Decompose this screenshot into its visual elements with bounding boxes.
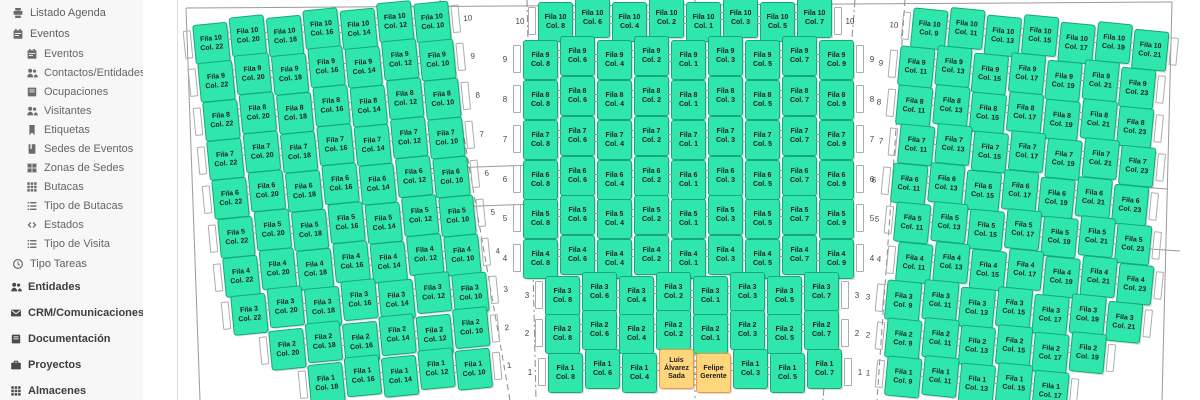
seat-row-label: Fila 9 <box>643 47 661 56</box>
seat[interactable]: Fila 9Col. 2 <box>634 36 669 76</box>
seat-col-label: Col. 6 <box>593 369 612 378</box>
seat[interactable]: Fila 8Col. 20 <box>239 91 278 134</box>
seat[interactable]: Fila 7Col. 20 <box>243 130 282 173</box>
seat[interactable]: Fila 1Col. 16 <box>344 354 383 397</box>
seat-row-label: Fila 5 <box>717 206 735 215</box>
sidebar-item-ocupaciones[interactable]: Ocupaciones <box>0 82 143 101</box>
seat-col-label: Col. 5 <box>753 259 772 268</box>
seat-col-label: Col. 14 <box>361 144 385 156</box>
sidebar-item-almacenes[interactable]: Almacenes <box>0 378 143 400</box>
seat[interactable]: Fila 3Col. 15 <box>995 286 1034 329</box>
row-number-label: 7 <box>475 129 488 139</box>
seat[interactable]: Fila 8Col. 17 <box>1006 91 1045 134</box>
seat[interactable]: Fila 5Col. 5 <box>745 199 780 239</box>
seat[interactable]: Fila 7Col. 4 <box>597 120 632 160</box>
seat[interactable]: Fila 5Col. 16 <box>327 201 366 244</box>
row-end-bracket <box>208 224 219 253</box>
seat-row-label: Fila 7 <box>791 127 809 136</box>
row-end-bracket <box>492 352 503 381</box>
seat[interactable]: Fila 3Col. 3 <box>730 272 765 312</box>
seat[interactable]: Fila 9Col. 17 <box>1008 52 1047 95</box>
row-end-bracket <box>488 276 499 305</box>
sidebar-item-etiquetas[interactable]: Etiquetas <box>0 120 143 139</box>
address-book-icon <box>10 333 22 345</box>
sidebar-item-documentación[interactable]: Documentación <box>0 326 143 352</box>
row-number-label: 1 <box>524 368 536 377</box>
seat[interactable]: Fila 9Col. 5 <box>745 40 780 80</box>
seat-col-label: Col. 20 <box>266 268 290 280</box>
seat[interactable]: Fila 1Col. 13 <box>958 362 997 400</box>
seat-row-label: Fila 9 <box>606 51 624 60</box>
users-icon <box>26 67 38 79</box>
seat-row-label: Fila 1 <box>816 360 834 369</box>
seat-col-label: Col. 11 <box>928 299 951 311</box>
seat[interactable]: Fila 8Col. 13 <box>932 84 971 127</box>
seat-row-label: Fila 2 <box>554 325 572 334</box>
seat-col-label: Col. 22 <box>210 119 234 131</box>
seat[interactable]: Fila 2Col. 19 <box>1068 331 1107 374</box>
seat-col-label: Col. 4 <box>627 334 646 343</box>
seat[interactable]: Fila 5Col. 3 <box>708 195 743 235</box>
sidebar-item-label: Almacenes <box>28 385 86 397</box>
seat[interactable]: Fila 4Col. 13 <box>932 241 971 284</box>
seat[interactable]: Fila 7Col. 7 <box>782 116 817 156</box>
seat-row-label: Fila 4 <box>717 246 735 255</box>
seat[interactable]: Fila 6Col. 3 <box>708 156 743 196</box>
seat-col-label: Col. 21 <box>1088 158 1112 170</box>
sidebar-item-sedes-de-eventos[interactable]: Sedes de Eventos <box>0 139 143 158</box>
seat[interactable]: Fila 1Col. 6 <box>585 349 620 389</box>
seat[interactable]: Fila 5Col. 13 <box>930 201 969 244</box>
seat-col-label: Col. 2 <box>664 292 683 301</box>
row-number-label: 10 <box>844 17 856 26</box>
seat[interactable]: Fila 4Col. 21 <box>1079 255 1118 298</box>
seat[interactable]: Fila 3Col. 6 <box>582 272 617 312</box>
seat[interactable]: Fila 9Col. 8 <box>523 40 558 80</box>
seat-col-label: Col. 11 <box>900 222 923 234</box>
seat-col-label: Col. 18 <box>312 341 336 353</box>
seat[interactable]: Fila 1Col. 5 <box>770 353 805 393</box>
seat-row-label: Fila 9 <box>569 47 587 56</box>
row-end-bracket <box>888 127 899 156</box>
seat[interactable]: Fila 1Col. 18 <box>307 362 346 400</box>
seat-col-label: Col. 15 <box>1028 35 1052 47</box>
seat-col-label: Col. 12 <box>384 21 408 33</box>
seat-row-label: Fila 8 <box>680 91 698 100</box>
seat[interactable]: Fila 8Col. 3 <box>708 76 743 116</box>
seat[interactable]: Fila 7Col. 1 <box>671 120 706 160</box>
sidebar-item-entidades[interactable]: Entidades <box>0 274 143 300</box>
seat-col-label: Col. 11 <box>902 262 925 274</box>
seat[interactable]: Fila 9Col. 13 <box>934 45 973 88</box>
seat[interactable]: Fila 9Col. 7 <box>782 36 817 76</box>
seat[interactable]: Fila 2Col. 14 <box>378 313 417 356</box>
seat-col-label: Col. 20 <box>241 73 265 85</box>
seat-row-label: Fila 7 <box>569 127 587 136</box>
seat-col-label: Col. 20 <box>236 35 260 47</box>
seat[interactable]: Fila 6Col. 20 <box>248 169 287 212</box>
seat[interactable]: Fila 2Col. 11 <box>921 317 960 360</box>
sidebar-item-label: Tipo de Visita <box>44 238 110 250</box>
seat-row-label: Fila 9 <box>532 51 550 60</box>
seat-row-label: Fila 1 <box>742 360 760 369</box>
sidebar-item-listado-agenda[interactable]: Listado Agenda <box>0 2 143 23</box>
seat-row-label: Fila 8 <box>717 87 735 96</box>
seat[interactable]: Fila 8Col. 1 <box>671 80 706 120</box>
seat[interactable]: Fila 1Col. 9 <box>884 355 923 398</box>
seat[interactable]: Fila 6Col. 6 <box>560 156 595 196</box>
seat[interactable]: Fila 10Col. 11 <box>947 7 986 50</box>
sidebar-item-proyectos[interactable]: Proyectos <box>0 352 143 378</box>
row-end-bracket <box>298 370 309 399</box>
seat-row-label: Fila 8 <box>791 87 809 96</box>
seat-col-label: Col. 2 <box>642 56 661 65</box>
seat-col-label: Col. 5 <box>775 334 794 343</box>
seat[interactable]: Fila 8Col. 16 <box>312 84 351 127</box>
seat[interactable]: Fila 8Col. 7 <box>782 76 817 116</box>
seat-col-label: Col. 18 <box>312 306 336 318</box>
seat[interactable]: Fila 9Col. 4 <box>597 40 632 80</box>
seat[interactable]: Fila 2Col. 15 <box>995 324 1034 367</box>
seat-row-label: Fila 5 <box>791 206 809 215</box>
seat[interactable]: Fila 6Col. 5 <box>745 160 780 200</box>
seat-col-label: Col. 6 <box>568 136 587 145</box>
row-end-bracket <box>841 319 849 347</box>
seat-row-label: Fila 7 <box>754 131 772 140</box>
seat[interactable]: Fila 2Col. 10 <box>452 306 491 349</box>
seat[interactable]: Fila 9Col. 9 <box>819 40 854 80</box>
seat-col-label: Col. 5 <box>775 296 794 305</box>
seat-map: Fila 10Col. 22Fila 10Col. 20Fila 10Col. … <box>178 0 1190 400</box>
seat[interactable]: Fila 1Col. 10 <box>454 348 493 391</box>
row-number-label: 10 <box>888 20 901 30</box>
row-end-bracket <box>513 45 521 73</box>
seat[interactable]: Fila 1Col. 3 <box>733 349 768 389</box>
seat[interactable]: Fila 3Col. 2 <box>656 272 691 312</box>
grid-icon <box>10 385 22 397</box>
seat[interactable]: Fila 5Col. 4 <box>597 199 632 239</box>
seat-row-label: Fila 3 <box>813 283 831 292</box>
seat[interactable]: Fila 9Col. 21 <box>1081 59 1120 102</box>
seat[interactable]: Fila 6Col. 12 <box>395 155 434 198</box>
seat[interactable]: Fila 8Col. 4 <box>597 80 632 120</box>
seat[interactable]: Fila 8Col. 21 <box>1079 98 1118 141</box>
row-end-bracket <box>490 314 501 343</box>
seat[interactable]: Fila 2Col. 8 <box>545 314 580 354</box>
seat-row-label: Fila 5 <box>532 210 550 219</box>
row-number-label: 10 <box>514 17 526 26</box>
seat-col-label: Col. 2 <box>657 18 676 27</box>
seat-row-label: Fila 8 <box>643 87 661 96</box>
row-end-bracket <box>202 185 213 214</box>
seat-col-label: Col. 15 <box>976 112 1000 124</box>
seat-row-label: Fila 8 <box>569 87 587 96</box>
row-end-bracket <box>513 125 521 153</box>
seat-col-label: Col. 5 <box>753 140 772 149</box>
seat[interactable]: Fila 10Col. 15 <box>1021 14 1060 57</box>
seat[interactable]: Fila 4Col. 16 <box>332 240 371 283</box>
seat[interactable]: Fila 8Col. 6 <box>560 76 595 116</box>
row-end-bracket <box>475 199 486 228</box>
row-number-label: 6 <box>499 175 511 184</box>
seat[interactable]: Fila 6Col. 17 <box>1001 169 1040 212</box>
seat[interactable]: Fila 10Col. 19 <box>1094 21 1133 64</box>
row-end-bracket <box>221 301 232 330</box>
seat[interactable]: Fila 6Col. 2 <box>634 156 669 196</box>
seat-row-label: Fila 2 <box>665 321 683 330</box>
seat-col-label: Col. 13 <box>941 65 965 77</box>
seat[interactable]: Fila 7Col. 8 <box>523 120 558 160</box>
row-number-label: 5 <box>871 214 884 224</box>
briefcase-icon <box>10 359 22 371</box>
seat[interactable]: Fila 5Col. 8 <box>523 199 558 239</box>
seat[interactable]: Fila 4Col. 2 <box>634 235 669 275</box>
seat-row-label: Fila 4 <box>606 250 624 259</box>
row-end-bracket <box>450 5 461 34</box>
seat[interactable]: Fila 1Col. 11 <box>921 355 960 398</box>
sidebar-item-tipo-tareas[interactable]: Tipo Tareas <box>0 253 143 274</box>
seat[interactable]: Fila 6Col. 16 <box>321 162 360 205</box>
row-end-bracket <box>460 82 471 111</box>
seat[interactable]: Fila 9Col. 20 <box>234 52 273 95</box>
seat-col-label: Col. 19 <box>1047 236 1071 248</box>
calendar-icon <box>12 28 24 40</box>
seat[interactable]: Fila 6Col. 21 <box>1074 176 1113 219</box>
seat[interactable]: Fila 5Col. 21 <box>1077 215 1116 258</box>
row-number-label: 2 <box>521 329 533 338</box>
seat[interactable]: Fila 2Col. 6 <box>582 310 617 350</box>
seat-col-label: Col. 19 <box>1049 276 1073 288</box>
sidebar-item-tipo-de-butacas[interactable]: Tipo de Butacas <box>0 196 143 215</box>
seat-col-label: Col. 12 <box>422 292 446 304</box>
seat-col-label: Col. 14 <box>385 299 409 311</box>
sidebar-item-eventos[interactable]: Eventos <box>0 23 143 44</box>
occupied-seat[interactable]: Felipe Gerente <box>696 353 731 393</box>
seat-col-label: Col. 1 <box>694 22 713 31</box>
row-end-bracket <box>464 121 475 150</box>
row-end-bracket <box>886 245 897 274</box>
seat[interactable]: Fila 10Col. 12 <box>376 0 415 43</box>
seat[interactable]: Fila 7Col. 12 <box>390 116 429 159</box>
seat[interactable]: Fila 1Col. 7 <box>807 349 842 389</box>
sidebar-item-tipo-de-visita[interactable]: Tipo de Visita <box>0 234 143 253</box>
seat[interactable]: Fila 1Col. 8 <box>548 353 583 393</box>
seat[interactable]: Fila 3Col. 16 <box>340 278 379 321</box>
seat[interactable]: Fila 6Col. 13 <box>927 162 966 205</box>
seat-col-label: Col. 11 <box>904 144 927 156</box>
seat-col-label: Col. 5 <box>753 100 772 109</box>
seat[interactable]: Fila 10Col. 2 <box>649 0 684 38</box>
seat[interactable]: Fila 3Col. 20 <box>267 285 306 328</box>
seat[interactable]: Fila 3Col. 19 <box>1068 293 1107 336</box>
seat[interactable]: Fila 4Col. 17 <box>1006 248 1045 291</box>
sidebar-item-label: Ocupaciones <box>44 86 108 98</box>
seat-row-label: Fila 4 <box>643 246 661 255</box>
sidebar-item-eventos[interactable]: Eventos <box>0 44 143 63</box>
seat[interactable]: Fila 7Col. 5 <box>745 120 780 160</box>
seat[interactable]: Fila 10Col. 6 <box>575 0 610 38</box>
seat[interactable]: Fila 5Col. 1 <box>671 199 706 239</box>
sidebar-item-zonas-de-sedes[interactable]: Zonas de Sedes <box>0 158 143 177</box>
seat-row-label: Fila 10 <box>656 9 678 18</box>
row-number-label: 5 <box>486 207 499 217</box>
sidebar-item-label: Estados <box>44 219 84 231</box>
seat[interactable]: Fila 3Col. 11 <box>921 279 960 322</box>
row-number-label: 7 <box>875 136 888 146</box>
seat[interactable]: Fila 4Col. 20 <box>259 247 298 290</box>
seat-row-label: Fila 3 <box>665 283 683 292</box>
seat[interactable]: Fila 8Col. 9 <box>819 80 854 120</box>
seat[interactable]: Fila 6Col. 8 <box>523 160 558 200</box>
seat-col-label: Col. 8 <box>553 334 572 343</box>
seat[interactable]: Fila 1Col. 14 <box>381 355 420 398</box>
seat[interactable]: Fila 6Col. 4 <box>597 160 632 200</box>
seat-col-label: Col. 21 <box>1084 236 1108 248</box>
seat[interactable]: Fila 2Col. 1 <box>693 314 728 354</box>
seat[interactable]: Fila 10Col. 7 <box>797 0 832 38</box>
sidebar-item-label: CRM/Comunicaciones <box>28 307 143 319</box>
seat-row-label: Fila 8 <box>754 91 772 100</box>
seat[interactable]: Fila 7Col. 2 <box>634 116 669 156</box>
seat-col-label: Col. 10 <box>440 176 464 188</box>
seat[interactable]: Fila 2Col. 2 <box>656 310 691 350</box>
seat[interactable]: Fila 6Col. 9 <box>819 160 854 200</box>
seat-col-label: Col. 3 <box>738 330 757 339</box>
seat[interactable]: Fila 2Col. 4 <box>619 314 654 354</box>
seat-row-label: Fila 6 <box>828 171 846 180</box>
seat-col-label: Col. 20 <box>250 151 274 163</box>
seat[interactable]: Fila 7Col. 9 <box>819 120 854 160</box>
seat-col-label: Col. 9 <box>893 300 913 311</box>
seat-col-label: Col. 7 <box>815 369 834 378</box>
seat[interactable]: Fila 5Col. 2 <box>634 195 669 235</box>
seat[interactable]: Fila 10Col. 3 <box>723 0 758 38</box>
seat[interactable]: Fila 5Col. 20 <box>254 208 293 251</box>
row-number-label: 7 <box>499 135 511 144</box>
sidebar-item-contactos-entidades[interactable]: Contactos/Entidades <box>0 63 143 82</box>
seat[interactable]: Fila 1Col. 15 <box>995 362 1034 400</box>
row-end-bracket <box>183 30 194 59</box>
seat[interactable]: Fila 5Col. 7 <box>782 195 817 235</box>
sidebar-item-label: Visitantes <box>44 105 92 117</box>
seat-col-label: Col. 6 <box>568 255 587 264</box>
seat[interactable]: Fila 7Col. 21 <box>1081 137 1120 180</box>
seat[interactable]: Fila 9Col. 6 <box>560 36 595 76</box>
seat-col-label: Col. 11 <box>904 66 927 78</box>
seat-col-label: Col. 4 <box>605 259 624 268</box>
seat-col-label: Col. 2 <box>642 136 661 145</box>
seat[interactable]: Fila 10Col. 20 <box>229 14 268 57</box>
row-end-bracket <box>841 281 849 309</box>
seat[interactable]: Fila 9Col. 16 <box>307 45 346 88</box>
row-number-label: 8 <box>873 97 886 107</box>
bookmark-icon <box>26 124 38 136</box>
seat-col-label: Col. 9 <box>919 28 939 39</box>
seat[interactable]: Fila 4Col. 3 <box>708 235 743 275</box>
seat-col-label: Col. 2 <box>642 176 661 185</box>
seat[interactable]: Fila 5Col. 17 <box>1004 208 1043 251</box>
seat-row-label: Fila 2 <box>813 321 831 330</box>
seat-row-label: Fila 3 <box>628 287 646 296</box>
sidebar-item-butacas[interactable]: Butacas <box>0 177 143 196</box>
seat[interactable]: Fila 7Col. 16 <box>316 123 355 166</box>
seat[interactable]: Fila 1Col. 12 <box>417 347 456 390</box>
seat-col-label: Col. 2 <box>664 330 683 339</box>
seat[interactable]: Fila 3Col. 7 <box>804 272 839 312</box>
seat-col-label: Col. 22 <box>219 197 243 209</box>
seat-col-label: Col. 17 <box>1015 73 1039 85</box>
seat-col-label: Col. 18 <box>279 73 303 85</box>
seat[interactable]: Fila 5Col. 6 <box>560 195 595 235</box>
seat-row-label: Fila 10 <box>730 9 752 18</box>
seat-col-label: Col. 9 <box>893 376 913 387</box>
grid-icon <box>26 181 38 193</box>
seat[interactable]: Fila 9Col. 12 <box>381 38 420 81</box>
seat-row-label: Fila 3 <box>591 283 609 292</box>
seat[interactable]: Fila 2Col. 18 <box>305 320 344 363</box>
seat-col-label: Col. 17 <box>1008 190 1032 202</box>
seat[interactable]: Fila 8Col. 8 <box>523 80 558 120</box>
sidebar-item-estados[interactable]: Estados <box>0 215 143 234</box>
seat-col-label: Col. 17 <box>1011 229 1035 241</box>
row-number-label: 1 <box>503 360 516 370</box>
occupant-name: Felipe Gerente <box>697 365 730 381</box>
row-end-bracket <box>886 88 897 117</box>
seat-col-label: Col. 14 <box>366 183 390 195</box>
seat[interactable]: Fila 7Col. 3 <box>708 116 743 156</box>
seat-col-label: Col. 19 <box>1101 42 1125 54</box>
row-end-bracket <box>888 49 899 78</box>
seat[interactable]: Fila 2Col. 5 <box>767 314 802 354</box>
seat[interactable]: Fila 7Col. 17 <box>1008 130 1047 173</box>
seat-row-label: Fila 6 <box>532 171 550 180</box>
clock-icon <box>12 258 24 270</box>
seat[interactable]: Fila 6Col. 1 <box>671 160 706 200</box>
seat[interactable]: Fila 6Col. 7 <box>782 156 817 196</box>
envelope-icon <box>10 307 22 319</box>
sidebar-item-crm-comunicaciones[interactable]: CRM/Comunicaciones <box>0 300 143 326</box>
seat[interactable]: Fila 5Col. 12 <box>401 194 440 237</box>
seat[interactable]: Fila 4Col. 12 <box>406 233 445 276</box>
seat[interactable]: Fila 1Col. 4 <box>622 353 657 393</box>
seat[interactable]: Fila 5Col. 9 <box>819 199 854 239</box>
row-end-bracket <box>875 359 886 388</box>
seat-col-label: Col. 1 <box>679 60 698 69</box>
seat[interactable]: Fila 8Col. 5 <box>745 80 780 120</box>
seat[interactable]: Fila 4Col. 6 <box>560 235 595 275</box>
seat[interactable]: Fila 9Col. 1 <box>671 40 706 80</box>
seat[interactable]: Fila 3Col. 12 <box>414 271 453 314</box>
seat-row-label: Fila 6 <box>569 167 587 176</box>
seat-col-label: Col. 13 <box>937 221 961 233</box>
seat[interactable]: Fila 1Col. 17 <box>1031 370 1070 400</box>
seat[interactable]: Fila 7Col. 6 <box>560 116 595 156</box>
seat[interactable]: Fila 9Col. 3 <box>708 36 743 76</box>
seat[interactable]: Fila 2Col. 7 <box>804 310 839 350</box>
seat[interactable]: Fila 8Col. 12 <box>386 77 425 120</box>
seat[interactable]: Fila 10Col. 16 <box>302 7 341 50</box>
seat-col-label: Col. 10 <box>446 215 470 227</box>
seat[interactable]: Fila 7Col. 13 <box>934 123 973 166</box>
seat[interactable]: Fila 2Col. 3 <box>730 310 765 350</box>
seat-col-label: Col. 19 <box>1049 119 1073 131</box>
sidebar-item-visitantes[interactable]: Visitantes <box>0 101 143 120</box>
seat-col-label: Col. 5 <box>768 22 787 31</box>
seat[interactable]: Fila 4Col. 7 <box>782 235 817 275</box>
seat[interactable]: Fila 8Col. 2 <box>634 76 669 116</box>
occupied-seat[interactable]: Luis Álvarez Sada <box>659 349 694 389</box>
sidebar-item-label: Tipo Tareas <box>30 258 87 270</box>
